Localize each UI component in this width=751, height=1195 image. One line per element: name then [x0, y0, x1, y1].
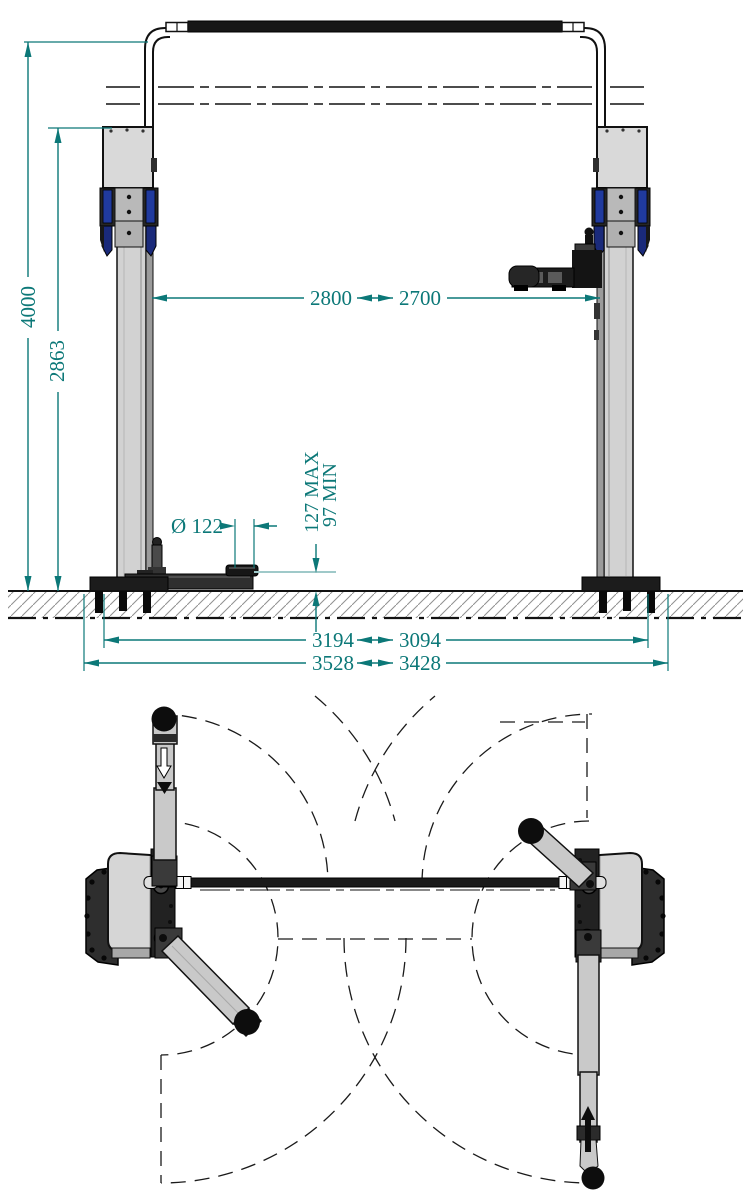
dim-pad-diameter: Ø 122: [171, 514, 223, 538]
plan-pad-right-rear: [518, 818, 544, 844]
plan-view: [84, 696, 665, 1190]
dim-clearance-width-max: 2800: [310, 286, 352, 310]
plan-pad-left-front: [234, 1009, 260, 1035]
folded-swing-arm: [509, 228, 602, 292]
plan-arm-right-front: [576, 930, 605, 1190]
left-column-cover: [103, 127, 153, 188]
lift-technical-drawing-page: 4000 2863 2800 2700 Ø 122: [0, 0, 751, 1195]
plan-crossbar: [144, 877, 606, 889]
plan-pad-right-front: [582, 1167, 605, 1190]
dim-baseplate-span-inner-b: 3094: [399, 628, 442, 652]
two-post-lift-drawing: 4000 2863 2800 2700 Ø 122: [0, 0, 751, 1195]
left-column: [100, 127, 158, 578]
floor: [8, 591, 743, 618]
hydraulic-hose: [145, 21, 605, 128]
left-base-plate: [90, 577, 168, 591]
crossbeam-centerlines: [106, 87, 644, 104]
left-carriage: [100, 188, 158, 256]
front-view: 4000 2863 2800 2700 Ø 122: [8, 21, 743, 675]
lift-pad: [226, 565, 258, 576]
right-base-plate: [582, 577, 660, 591]
dim-baseplate-span-outer-b: 3428: [399, 651, 441, 675]
dim-clearance-width-min: 2700: [399, 286, 441, 310]
right-column-cover: [597, 127, 647, 188]
arm-sweep-arcs: [158, 696, 592, 1183]
dim-baseplate-span-inner-a: 3194: [312, 628, 355, 652]
dim-pad-height-min: 97 MIN: [319, 463, 341, 527]
right-carriage: [592, 188, 650, 256]
plan-arm-left-rear: [152, 707, 178, 887]
plan-arm-left-front: [155, 928, 262, 1037]
dim-column-height: 2863: [45, 340, 69, 382]
plan-pad-left-rear: [152, 707, 177, 732]
dim-total-height: 4000: [16, 286, 40, 328]
right-column: [592, 127, 650, 578]
dim-baseplate-span-outer-a: 3528: [312, 651, 354, 675]
